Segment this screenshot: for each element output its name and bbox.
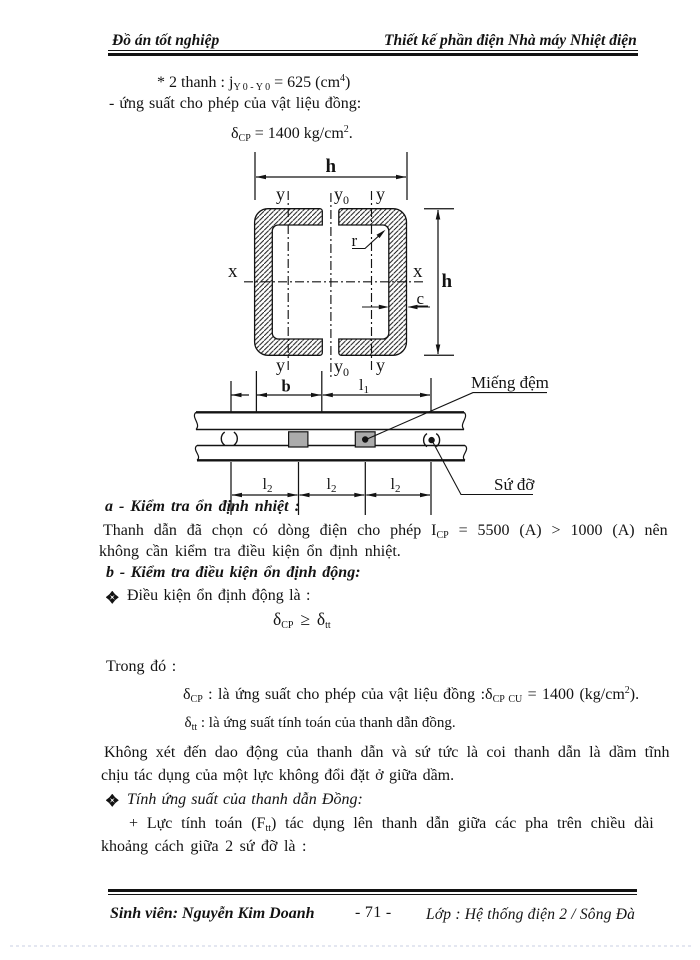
svg-text:h: h (326, 156, 337, 177)
svg-text:Miếng đệm: Miếng đệm (471, 373, 549, 392)
svg-text:y: y (376, 355, 385, 375)
svg-text:l1: l1 (359, 377, 369, 396)
svg-text:y: y (276, 355, 285, 375)
svg-text:r: r (352, 231, 358, 250)
svg-text:y: y (276, 184, 285, 204)
svg-text:c: c (417, 289, 425, 308)
svg-text:x: x (228, 261, 238, 282)
svg-text:Sứ đỡ: Sứ đỡ (494, 475, 535, 494)
svg-text:b: b (282, 377, 291, 396)
svg-text:l2: l2 (263, 476, 273, 495)
svg-text:y: y (376, 184, 385, 204)
svg-text:h: h (442, 271, 453, 292)
svg-text:l2: l2 (391, 476, 401, 495)
svg-text:y0: y0 (334, 356, 349, 379)
svg-text:y0: y0 (334, 184, 349, 207)
svg-text:l2: l2 (327, 476, 337, 495)
svg-text:x: x (413, 261, 423, 282)
